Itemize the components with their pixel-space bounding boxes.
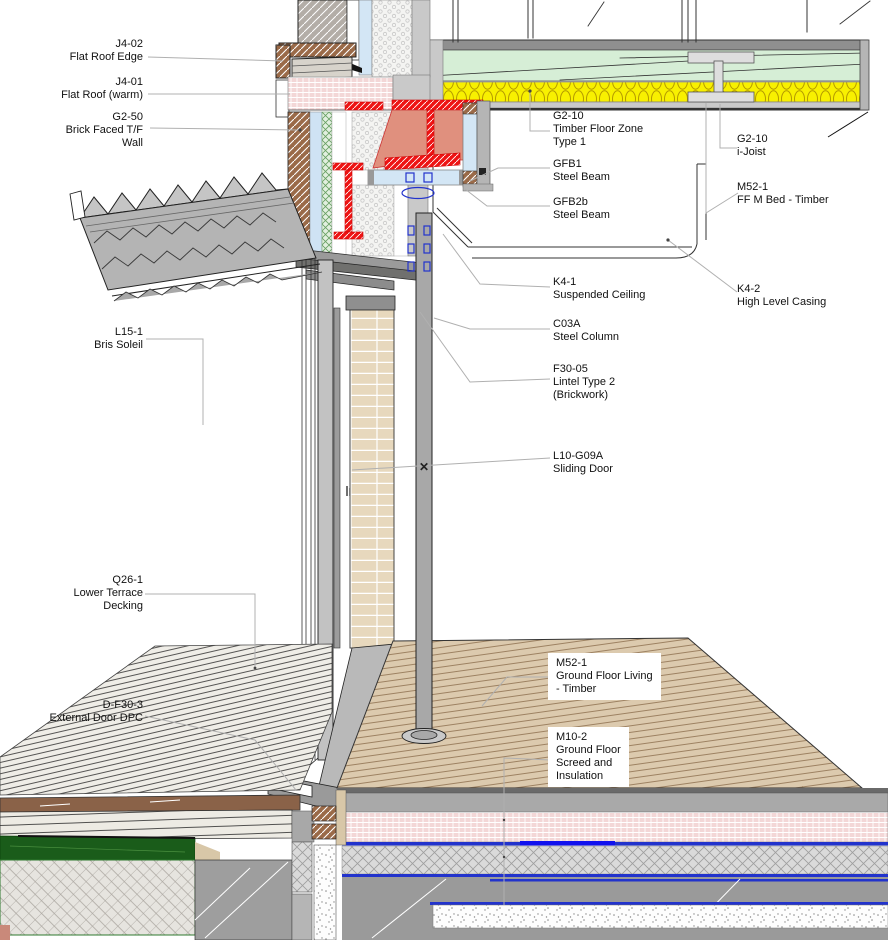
label-i-joist: G2-10 i-Joist xyxy=(737,133,768,159)
label-lower-terrace-decking: Q26-1 Lower Terrace Decking xyxy=(0,574,143,613)
label-external-door-dpc: D-F30-3 External Door DPC xyxy=(0,699,143,725)
brick-pier xyxy=(350,310,394,648)
door-handle xyxy=(347,486,350,496)
floor-insulation xyxy=(342,812,888,842)
suspended-ceiling xyxy=(368,170,465,185)
bris-soleil-louvres xyxy=(70,173,322,301)
label-brick-faced-wall: G2-50 Brick Faced T/F Wall xyxy=(0,111,143,150)
lintel xyxy=(346,296,395,310)
concrete-slab xyxy=(433,905,888,928)
label-lintel-type-2: F30-05 Lintel Type 2 (Brickwork) xyxy=(553,363,615,402)
label-timber-floor-zone: G2-10 Timber Floor Zone Type 1 xyxy=(553,110,643,149)
label-gfb2b-steel-beam: GFB2b Steel Beam xyxy=(553,196,610,222)
sliding-door-position-marker-icon: ✕ xyxy=(419,460,429,474)
label-sliding-door: L10-G09A Sliding Door xyxy=(553,450,613,476)
door-foundation xyxy=(292,806,336,940)
label-ff-m-bed-timber: M52-1 FF M Bed - Timber xyxy=(737,181,829,207)
label-ground-floor-screed: M10-2 Ground Floor Screed and Insulation xyxy=(548,727,629,787)
ground-hardcore xyxy=(0,860,195,935)
label-bris-soleil: L15-1 Bris Soleil xyxy=(0,326,143,352)
label-gfb1-steel-beam: GFB1 Steel Beam xyxy=(553,158,610,184)
label-flat-roof-warm: J4-01 Flat Roof (warm) xyxy=(0,76,143,102)
label-suspended-ceiling: K4-1 Suspended Ceiling xyxy=(553,276,645,302)
first-floor-assembly xyxy=(428,0,870,111)
architectural-detail-page: ✕ J4-02 Flat Roof Edge J4-01 Flat Roof (… xyxy=(0,0,888,940)
label-high-level-casing: K4-2 High Level Casing xyxy=(737,283,826,309)
label-ground-floor-living: M52-1 Ground Floor Living - Timber xyxy=(548,653,661,700)
label-steel-column: C03A Steel Column xyxy=(553,318,619,344)
label-flat-roof-edge: J4-02 Flat Roof Edge xyxy=(0,38,143,64)
deck-bearer xyxy=(0,795,300,812)
roof-edge-fascia xyxy=(279,43,356,57)
screed-edge xyxy=(337,793,888,812)
wall-studs xyxy=(453,0,870,42)
